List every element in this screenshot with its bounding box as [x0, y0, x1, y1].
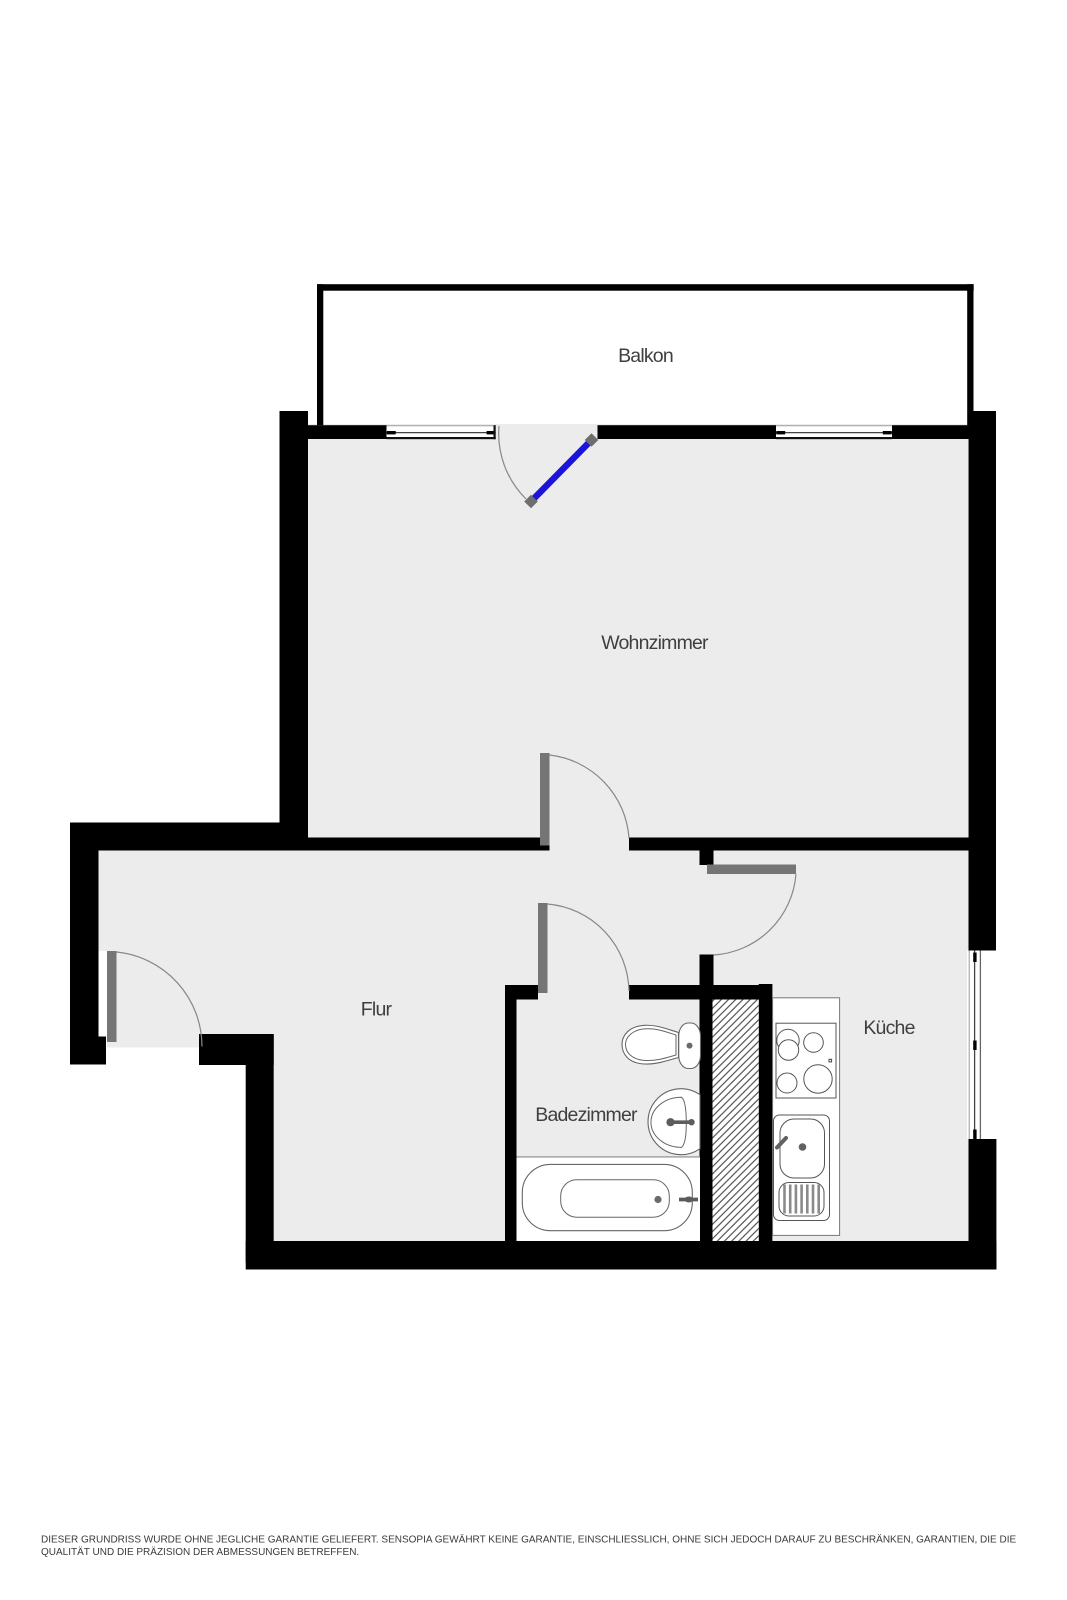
svg-text:Wohnzimmer: Wohnzimmer [601, 632, 709, 654]
svg-text:QUALITÄT UND DIE PRÄZISION DER: QUALITÄT UND DIE PRÄZISION DER ABMESSUNG… [41, 1546, 359, 1558]
svg-text:DIESER GRUNDRISS WURDE OHNE JE: DIESER GRUNDRISS WURDE OHNE JEGLICHE GAR… [41, 1534, 1017, 1546]
svg-text:Badezimmer: Badezimmer [535, 1104, 638, 1126]
svg-text:Balkon: Balkon [618, 345, 673, 367]
svg-text:Küche: Küche [863, 1017, 914, 1039]
svg-text:Flur: Flur [361, 999, 393, 1021]
